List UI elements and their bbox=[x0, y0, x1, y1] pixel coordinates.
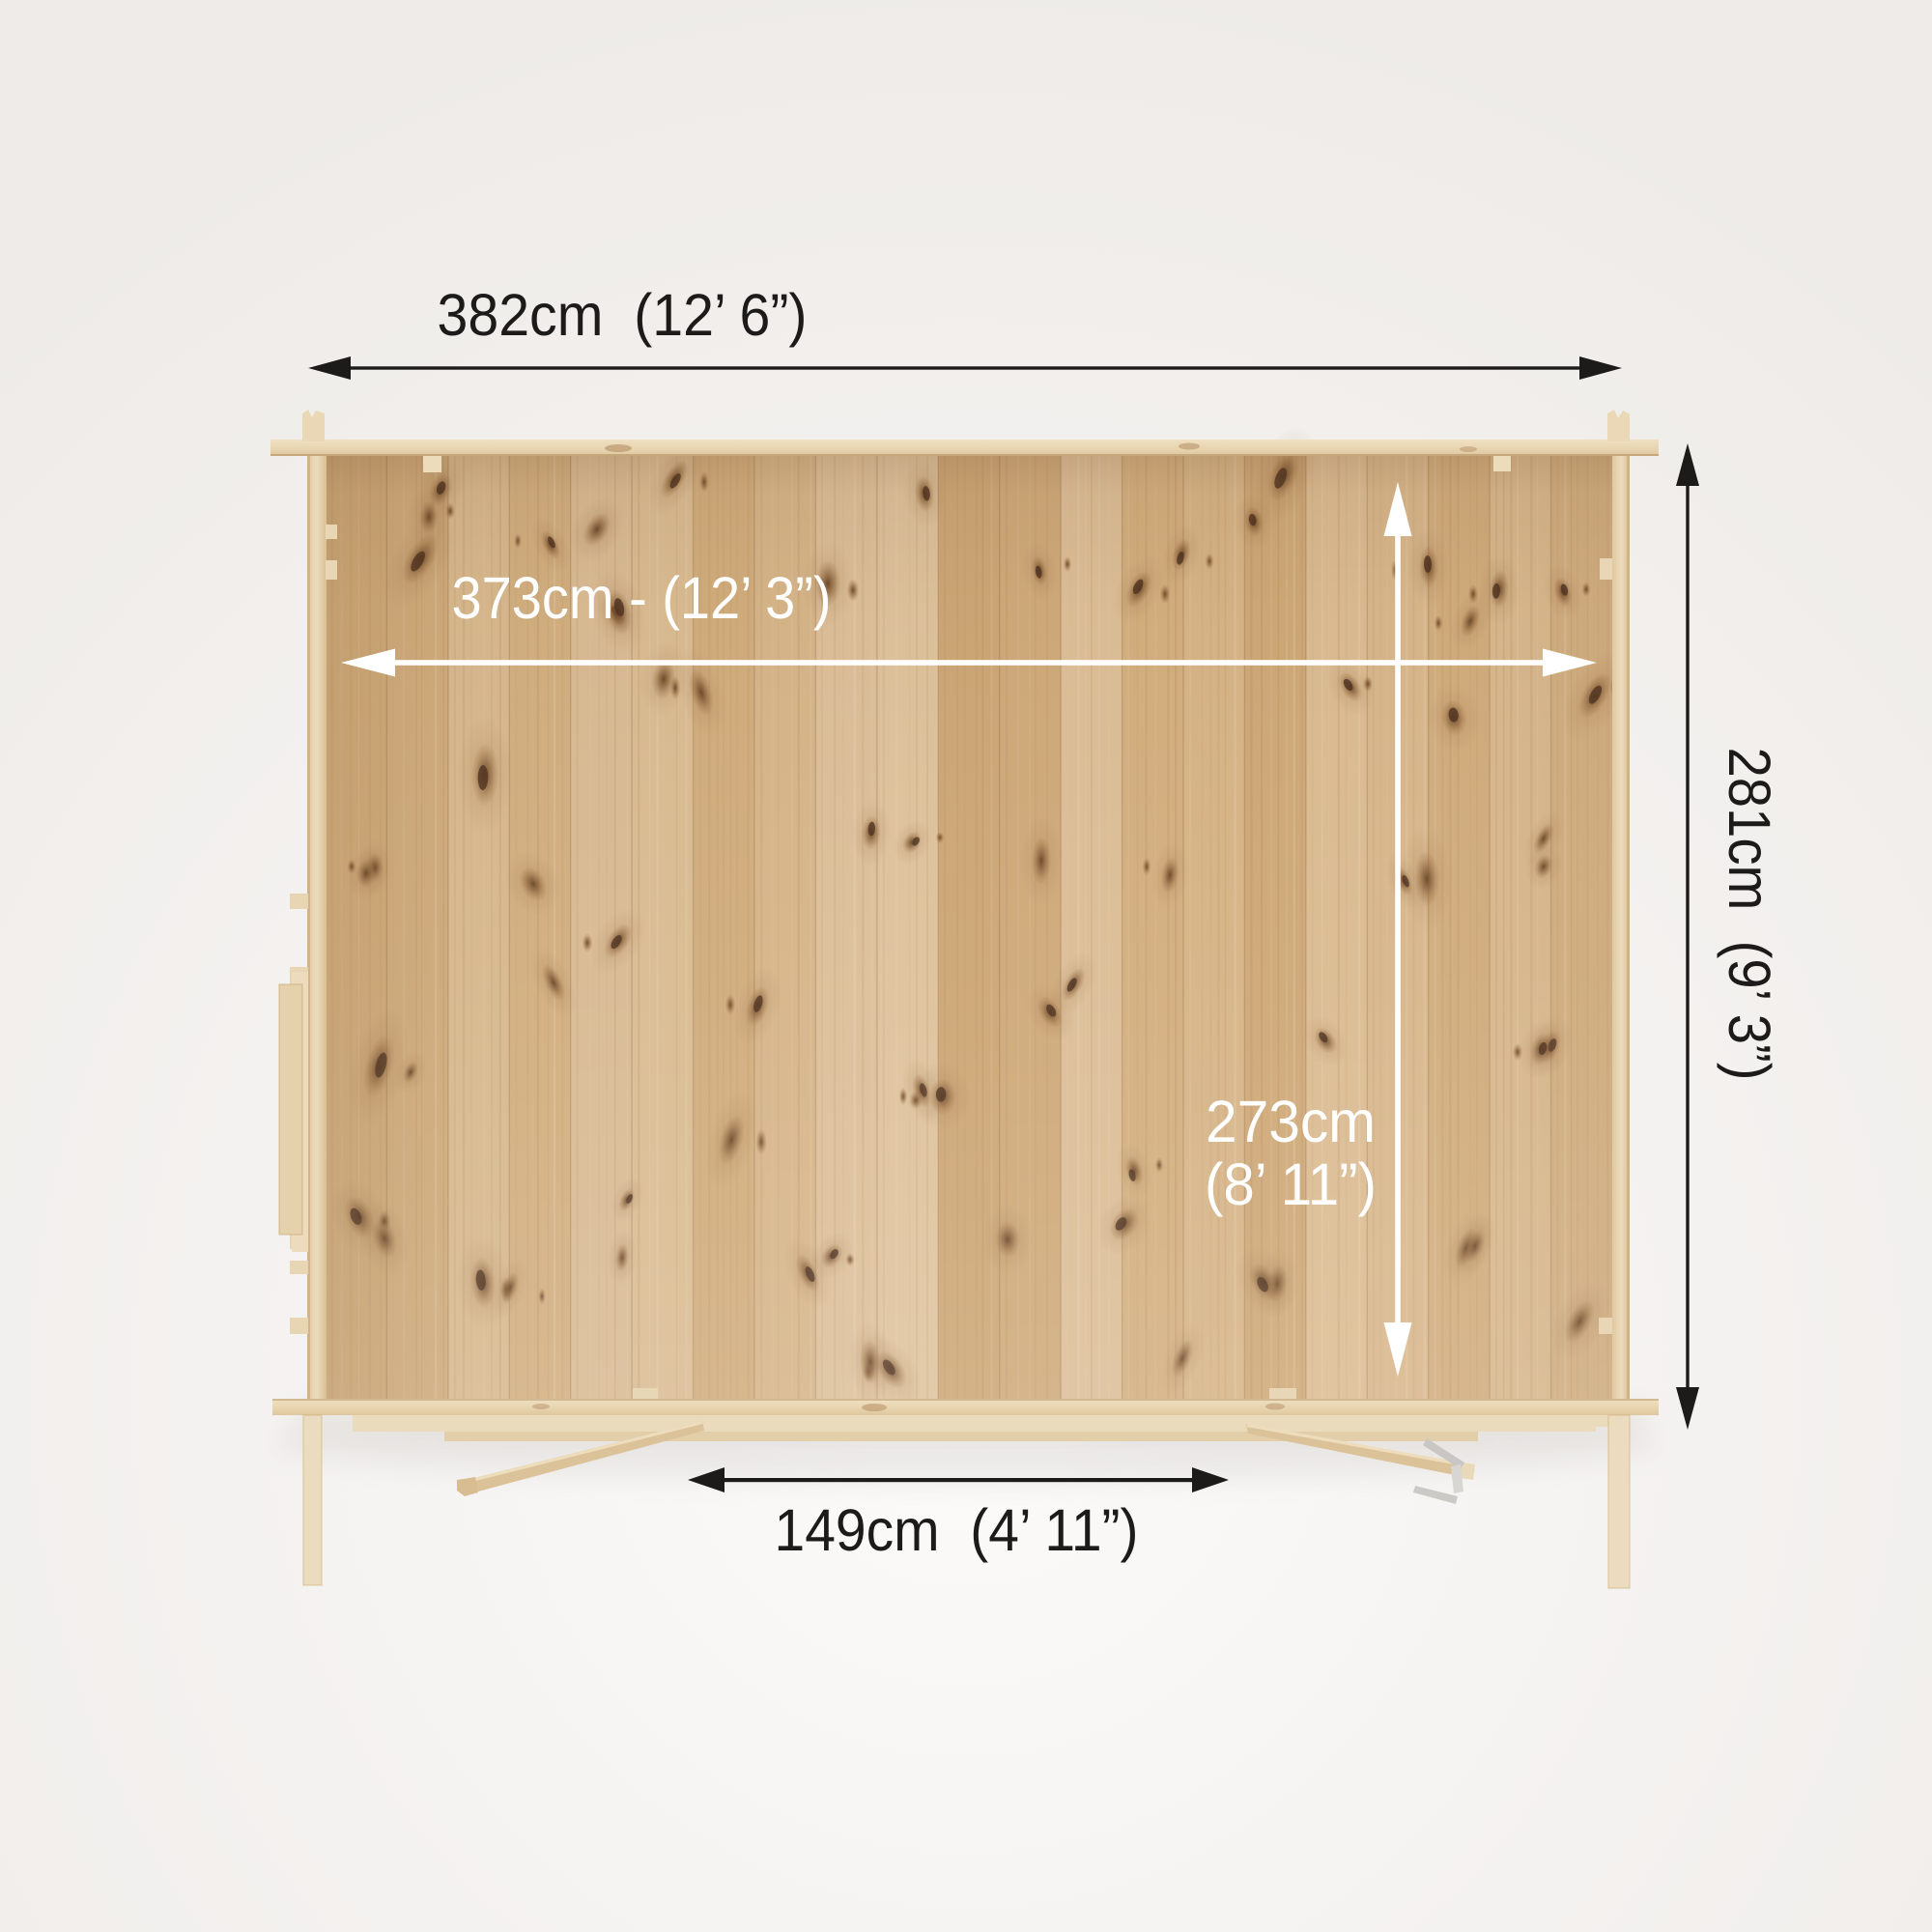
svg-text:373cm - (12’ 3”): 373cm - (12’ 3”) bbox=[452, 565, 832, 631]
svg-text:273cm: 273cm bbox=[1206, 1089, 1376, 1154]
svg-text:(8’ 11”): (8’ 11”) bbox=[1205, 1151, 1377, 1217]
svg-text:281cm (9’ 3”): 281cm (9’ 3”) bbox=[1717, 748, 1782, 1081]
svg-text:149cm (4’ 11”): 149cm (4’ 11”) bbox=[775, 1497, 1139, 1563]
svg-text:382cm (12’ 6”): 382cm (12’ 6”) bbox=[438, 282, 808, 348]
